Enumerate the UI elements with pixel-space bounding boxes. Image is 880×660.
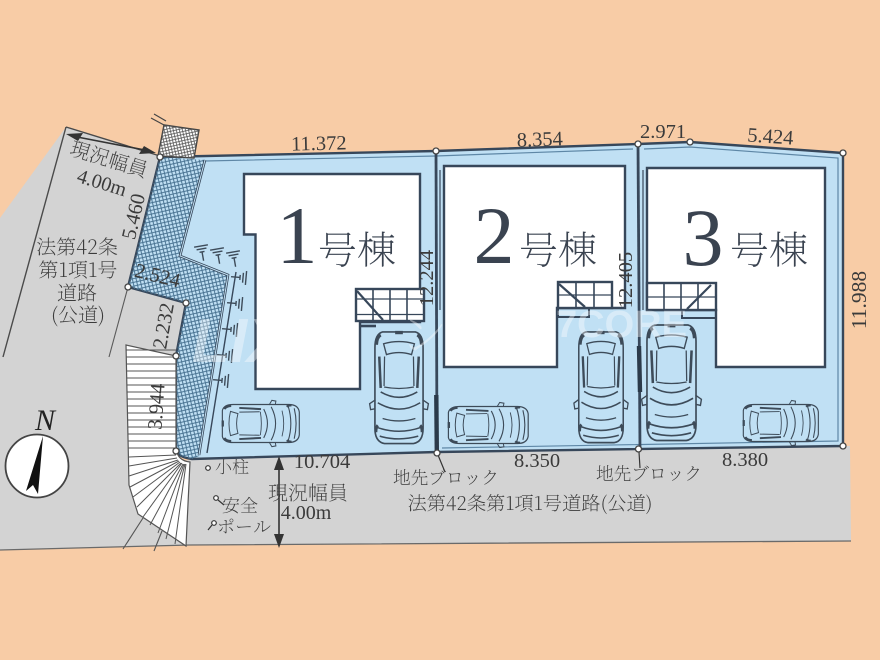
svg-text:7CORE: 7CORE (556, 304, 687, 346)
svg-text:N: N (34, 404, 57, 437)
svg-text:5.424: 5.424 (747, 124, 795, 149)
svg-text:2: 2 (474, 190, 515, 281)
svg-text:11.988: 11.988 (847, 271, 871, 329)
svg-text:12.244: 12.244 (416, 250, 438, 306)
svg-text:4.00m: 4.00m (281, 502, 332, 524)
svg-text:3: 3 (683, 192, 724, 283)
svg-text:10.704: 10.704 (294, 451, 350, 473)
svg-text:3.944: 3.944 (144, 383, 169, 431)
svg-text:LIX: LIX (192, 307, 292, 376)
svg-text:8.380: 8.380 (722, 449, 768, 471)
svg-text:2.971: 2.971 (640, 121, 686, 143)
svg-text:8.350: 8.350 (514, 450, 560, 472)
svg-text:12.405: 12.405 (615, 252, 637, 308)
svg-text:1: 1 (277, 190, 318, 281)
svg-text:8.354: 8.354 (516, 128, 563, 152)
svg-text:11.372: 11.372 (291, 132, 347, 155)
